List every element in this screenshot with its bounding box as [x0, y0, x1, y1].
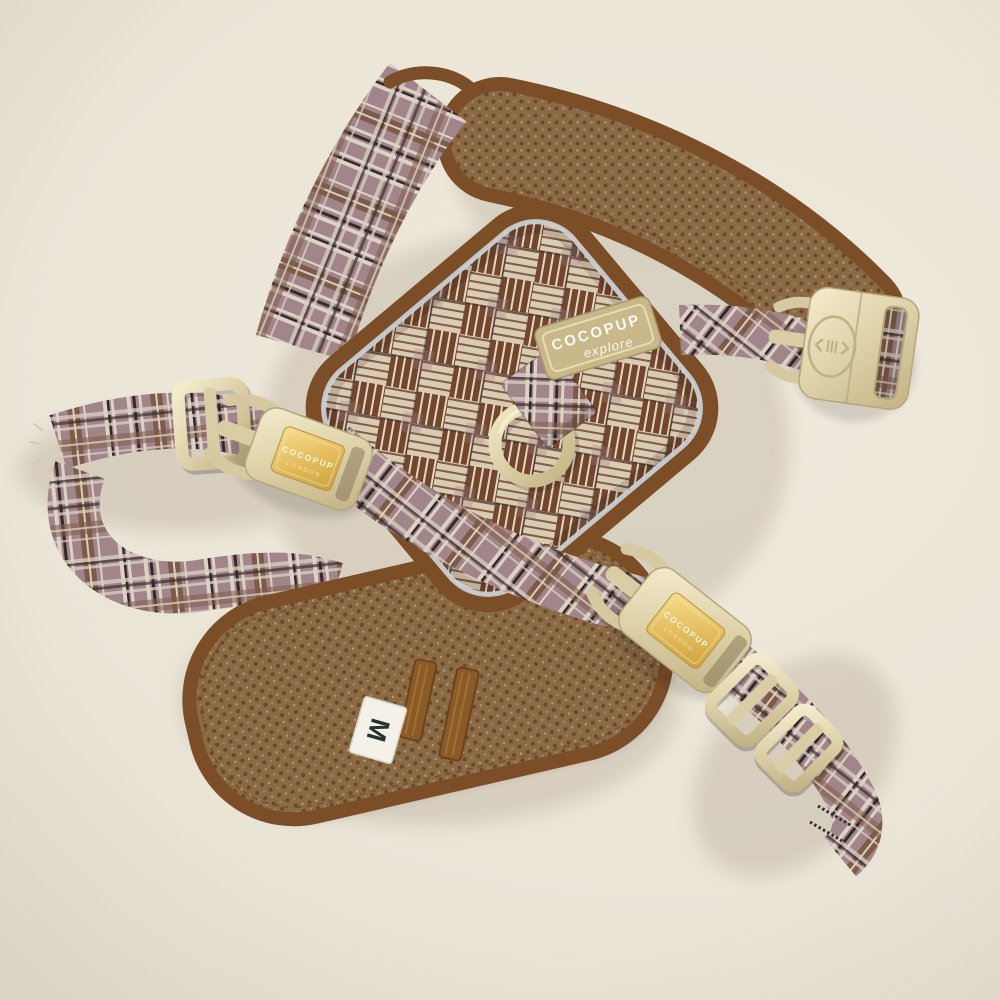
vignette — [0, 0, 1000, 1000]
product-photo-dog-harness: M COCOPUP explore — [0, 0, 1000, 1000]
harness-illustration: M COCOPUP explore — [0, 0, 1000, 1000]
